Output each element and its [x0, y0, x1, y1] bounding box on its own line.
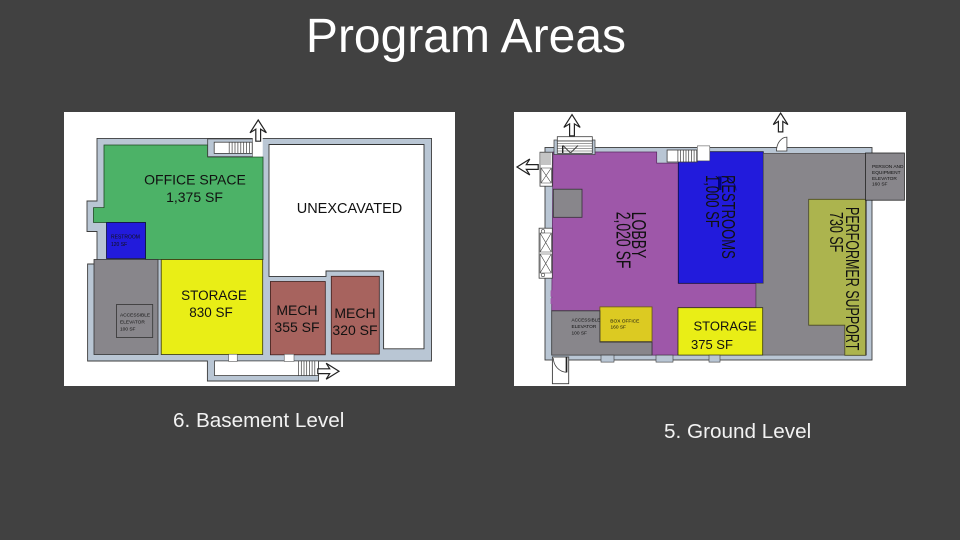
svg-text:MECH: MECH	[334, 305, 375, 321]
svg-text:STORAGE: STORAGE	[694, 319, 758, 334]
svg-text:BOX OFFICE: BOX OFFICE	[610, 319, 639, 325]
svg-text:100 SF: 100 SF	[120, 327, 136, 333]
svg-text:730 SF: 730 SF	[825, 212, 845, 252]
svg-text:ACCESSIBLE: ACCESSIBLE	[120, 313, 150, 319]
svg-text:ELEVATOR: ELEVATOR	[872, 176, 897, 182]
svg-text:ELEVATOR: ELEVATOR	[572, 324, 597, 330]
svg-text:1,000 SF: 1,000 SF	[701, 175, 722, 228]
svg-text:EQUIPMENT: EQUIPMENT	[872, 170, 901, 176]
svg-text:MECH: MECH	[276, 302, 317, 318]
svg-text:100 SF: 100 SF	[572, 331, 588, 337]
svg-text:320 SF: 320 SF	[332, 322, 377, 338]
svg-text:1,375 SF: 1,375 SF	[166, 189, 223, 205]
svg-text:OFFICE SPACE: OFFICE SPACE	[144, 172, 246, 188]
svg-text:PERSON AND: PERSON AND	[872, 164, 904, 170]
svg-text:830 SF: 830 SF	[189, 305, 233, 320]
svg-text:160 SF: 160 SF	[872, 182, 888, 188]
svg-text:UNEXCAVATED: UNEXCAVATED	[297, 201, 403, 217]
svg-text:2,020 SF: 2,020 SF	[612, 212, 635, 269]
svg-text:355 SF: 355 SF	[274, 319, 319, 335]
svg-text:STORAGE: STORAGE	[181, 288, 247, 303]
svg-text:120 SF: 120 SF	[111, 242, 127, 248]
svg-text:375 SF: 375 SF	[691, 337, 733, 352]
svg-text:ACCESSIBLE: ACCESSIBLE	[572, 318, 601, 323]
svg-text:ELEVATOR: ELEVATOR	[120, 320, 145, 326]
svg-text:160 SF: 160 SF	[611, 325, 627, 331]
svg-text:RESTROOM: RESTROOM	[111, 235, 140, 241]
